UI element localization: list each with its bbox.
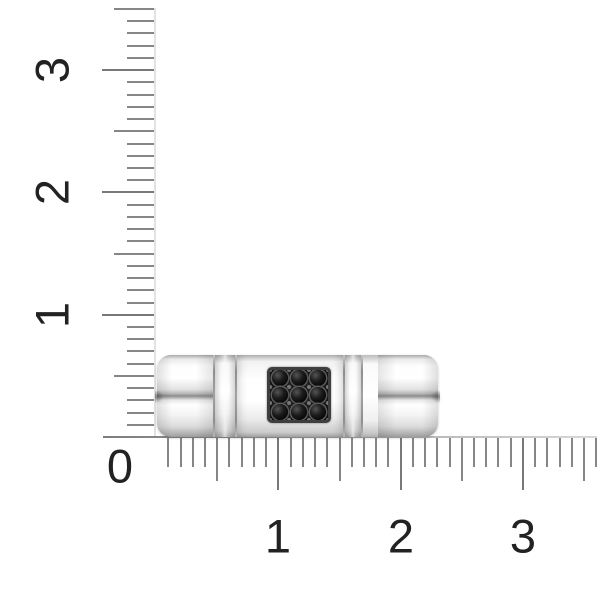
horizontal-tick (595, 438, 597, 467)
horizontal-ruler-label-2: 2 (388, 513, 414, 560)
black-stone (272, 387, 288, 403)
horizontal-tick (302, 438, 304, 467)
vertical-tick (127, 277, 154, 279)
vertical-tick (127, 94, 154, 96)
vertical-tick (114, 253, 154, 255)
horizontal-tick (571, 438, 573, 467)
horizontal-tick (559, 438, 561, 467)
horizontal-tick (473, 438, 475, 467)
vertical-tick (127, 57, 154, 59)
horizontal-tick (461, 438, 463, 481)
ring-vertical-ridge (215, 355, 235, 437)
vertical-tick (127, 399, 154, 401)
horizontal-tick (192, 438, 194, 467)
vertical-tick (127, 45, 154, 47)
horizontal-tick (363, 438, 365, 467)
horizontal-tick (387, 438, 389, 467)
vertical-tick (127, 240, 154, 242)
horizontal-tick (522, 438, 524, 490)
ring-flat-segment (363, 355, 378, 437)
vertical-tick (127, 338, 154, 340)
vertical-tick (127, 350, 154, 352)
vertical-tick (127, 118, 154, 120)
horizontal-ruler-label-1: 1 (265, 513, 291, 560)
vertical-tick (127, 302, 154, 304)
vertical-ruler-label-3: 3 (29, 57, 76, 83)
horizontal-tick (180, 438, 182, 467)
vertical-ruler-baseline (154, 8, 156, 437)
horizontal-tick (167, 438, 169, 467)
vertical-tick (127, 167, 154, 169)
vertical-tick (127, 265, 154, 267)
black-stone (310, 404, 326, 420)
vertical-tick (127, 412, 154, 414)
black-stone (272, 404, 288, 420)
horizontal-tick (449, 438, 451, 467)
vertical-tick (127, 387, 154, 389)
ring-left-notch (155, 390, 164, 403)
horizontal-tick (339, 438, 341, 481)
ring-right-cap-segment (378, 355, 438, 437)
vertical-tick (127, 20, 154, 22)
vertical-ruler-label-2: 2 (29, 179, 76, 205)
vertical-tick (127, 289, 154, 291)
ring-center-plate (237, 355, 343, 437)
horizontal-tick (436, 438, 438, 467)
horizontal-tick (400, 438, 402, 490)
vertical-tick (127, 363, 154, 365)
pave-stone-setting (267, 367, 331, 423)
ring-left-cap-segment (157, 355, 213, 437)
vertical-tick (127, 204, 154, 206)
vertical-tick (114, 375, 154, 377)
horizontal-tick (412, 438, 414, 467)
vertical-tick (102, 191, 154, 193)
ring-vertical-ridge (345, 355, 361, 437)
horizontal-tick (228, 438, 230, 467)
black-stone (272, 370, 288, 386)
horizontal-ruler-label-3: 3 (510, 513, 536, 560)
vertical-tick (127, 155, 154, 157)
horizontal-tick (424, 438, 426, 467)
vertical-tick (127, 179, 154, 181)
vertical-ruler-label-1: 1 (29, 302, 76, 328)
horizontal-tick (265, 438, 267, 467)
horizontal-tick (216, 438, 218, 481)
horizontal-tick (497, 438, 499, 467)
horizontal-tick (375, 438, 377, 467)
vertical-tick (127, 216, 154, 218)
horizontal-tick (290, 438, 292, 467)
vertical-tick (127, 32, 154, 34)
vertical-tick (127, 81, 154, 83)
black-stone (310, 370, 326, 386)
vertical-tick (127, 228, 154, 230)
vertical-tick (127, 326, 154, 328)
vertical-tick (127, 143, 154, 145)
black-stone (291, 370, 307, 386)
horizontal-tick (277, 438, 279, 490)
vertical-tick (127, 424, 154, 426)
jewelry-scale-photo: 1 2 3 1 2 3 0 (0, 0, 600, 600)
vertical-tick (102, 69, 154, 71)
black-stone (291, 387, 307, 403)
stone-grid (270, 370, 328, 420)
horizontal-tick (583, 438, 585, 481)
horizontal-tick (253, 438, 255, 467)
vertical-tick (114, 130, 154, 132)
horizontal-tick (510, 438, 512, 467)
vertical-tick (127, 106, 154, 108)
ruler-origin-label: 0 (107, 443, 133, 490)
vertical-tick (102, 314, 154, 316)
horizontal-tick (314, 438, 316, 467)
ring-band (157, 355, 438, 437)
black-stone (291, 404, 307, 420)
horizontal-tick (204, 438, 206, 467)
vertical-tick (114, 8, 154, 10)
horizontal-tick (351, 438, 353, 467)
ring-right-notch (431, 390, 440, 403)
black-stone (310, 387, 326, 403)
horizontal-tick (546, 438, 548, 467)
horizontal-tick (241, 438, 243, 467)
horizontal-tick (326, 438, 328, 467)
horizontal-tick (534, 438, 536, 467)
horizontal-tick (485, 438, 487, 467)
